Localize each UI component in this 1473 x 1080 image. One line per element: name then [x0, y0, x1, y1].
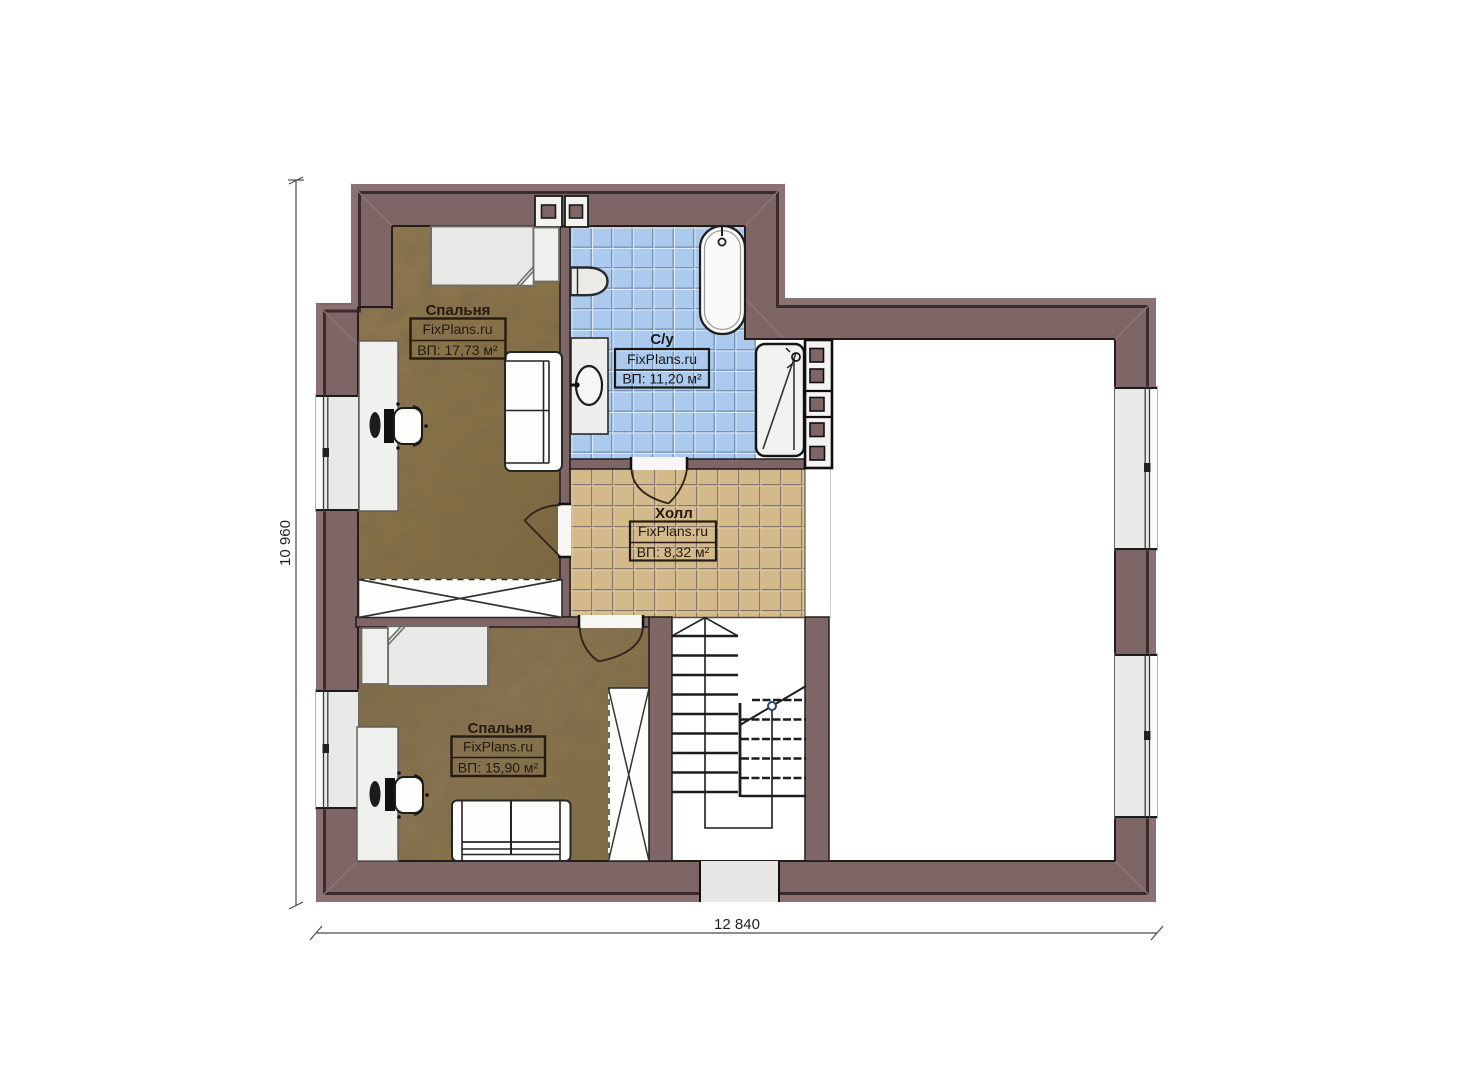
svg-text:FixPlans.ru: FixPlans.ru	[627, 351, 697, 367]
svg-text:ВП: 17,73 м²: ВП: 17,73 м²	[417, 342, 498, 358]
svg-text:ВП: 11,20 м²: ВП: 11,20 м²	[622, 371, 702, 387]
svg-text:Спальня: Спальня	[426, 302, 491, 319]
svg-text:12 840: 12 840	[714, 916, 760, 933]
svg-text:10 960: 10 960	[277, 520, 294, 566]
svg-text:FixPlans.ru: FixPlans.ru	[638, 523, 708, 539]
svg-text:ВП: 8,32 м²: ВП: 8,32 м²	[637, 544, 710, 560]
svg-text:FixPlans.ru: FixPlans.ru	[422, 321, 492, 337]
svg-text:ВП: 15,90 м²: ВП: 15,90 м²	[458, 760, 539, 776]
svg-text:FixPlans.ru: FixPlans.ru	[463, 739, 533, 755]
svg-text:Холл: Холл	[655, 505, 693, 522]
svg-text:С/у: С/у	[650, 331, 674, 348]
svg-text:Спальня: Спальня	[468, 720, 533, 737]
